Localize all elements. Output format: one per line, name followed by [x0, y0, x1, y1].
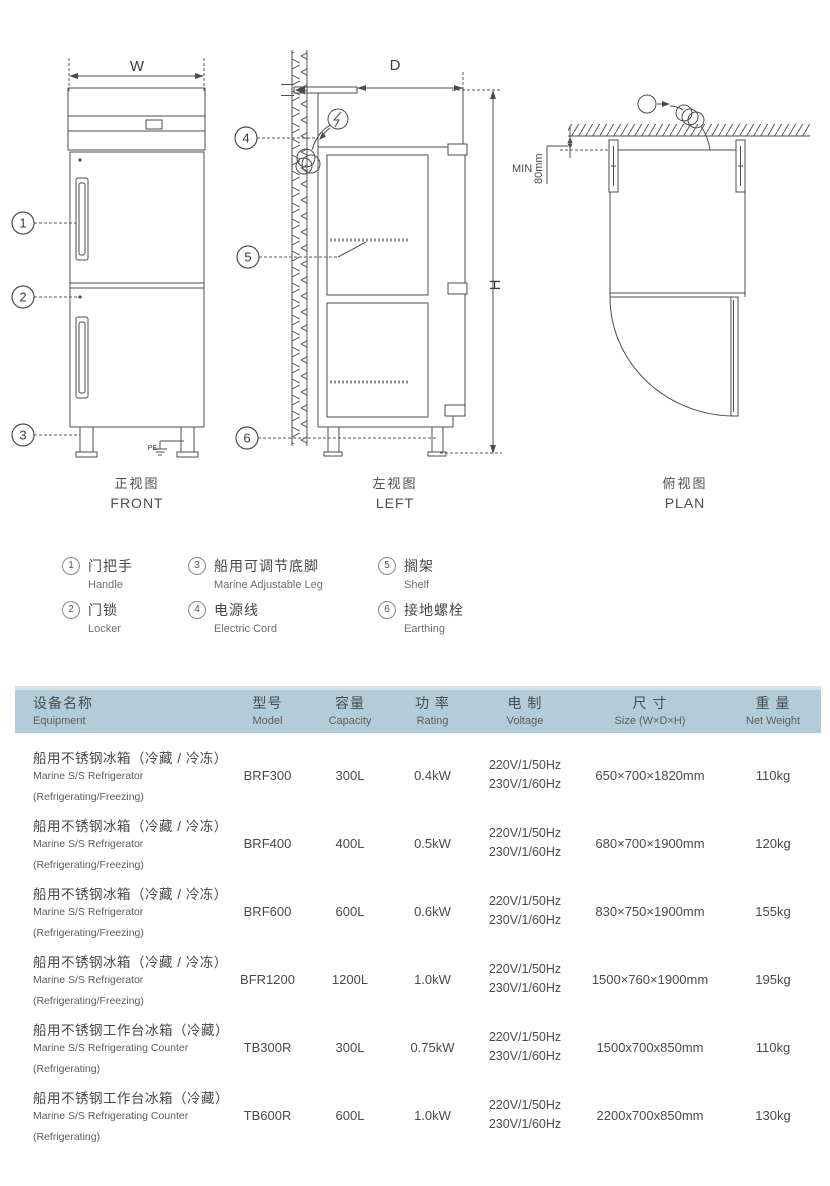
cell-model: BFR1200 [225, 972, 310, 987]
equipment-name-cn: 船用不锈钢冰箱（冷藏 / 冷冻） [33, 883, 225, 903]
legend-item: 4 电源线 Electric Cord [188, 600, 323, 635]
door-handle-lower [76, 317, 88, 398]
cell-rating: 0.5kW [390, 836, 475, 851]
compartment-lower [327, 303, 428, 417]
adjustable-leg-left [80, 427, 93, 452]
callout-6-earthing: 6 [236, 427, 436, 449]
equipment-name-cn: 船用不锈钢工作台冰箱（冷藏） [33, 1019, 225, 1039]
table-row: 船用不锈钢冰箱（冷藏 / 冷冻） Marine S/S Refrigerator… [15, 809, 821, 877]
legend-label-cn: 搁架 [404, 556, 434, 576]
cell-rating: 0.6kW [390, 904, 475, 919]
equipment-name-en: Marine S/S Refrigerator [33, 770, 143, 782]
adjustable-leg-right [181, 427, 194, 452]
svg-text:1: 1 [19, 216, 26, 231]
open-door [731, 297, 738, 416]
cell-model: TB300R [225, 1040, 310, 1055]
voltage-line-2: 230V/1/60Hz [489, 1115, 561, 1134]
legend-item: 3 船用可调节底脚 Marine Adjustable Leg [188, 556, 323, 591]
header-equipment: 设备名称 Equipment [15, 686, 225, 733]
table-row: 船用不锈钢工作台冰箱（冷藏） Marine S/S Refrigerating … [15, 1081, 821, 1149]
spec-table: 设备名称 Equipment 型号 Model 容量 Capacity 功 率 … [15, 686, 821, 1149]
cell-size: 830×750×1900mm [575, 904, 725, 919]
callout-2-locker: 2 [12, 286, 77, 308]
voltage-line-1: 220V/1/50Hz [489, 1096, 561, 1115]
voltage-line-2: 230V/1/60Hz [489, 911, 561, 930]
legend-item: 5 搁架 Shelf [378, 556, 464, 591]
cell-rating: 0.4kW [390, 768, 475, 783]
legend-item: 1 门把手 Handle [62, 556, 133, 591]
spec-table-body: 船用不锈钢冰箱（冷藏 / 冷冻） Marine S/S Refrigerator… [15, 733, 821, 1149]
plan-view-title-cn: 俯视图 [662, 476, 707, 491]
door-handle-upper [76, 178, 88, 260]
cell-capacity: 300L [310, 1040, 390, 1055]
cell-rating: 1.0kW [390, 972, 475, 987]
svg-text:2: 2 [19, 290, 26, 305]
cell-size: 650×700×1820mm [575, 768, 725, 783]
door-swing-arc [610, 297, 731, 416]
power-plug-symbol [319, 109, 348, 140]
top-compressor-panel [68, 88, 205, 150]
front-view-title-en: FRONT [110, 495, 163, 511]
legend-column: 3 船用可调节底脚 Marine Adjustable Leg 4 电源线 El… [188, 556, 323, 644]
cell-size: 1500x700x850mm [575, 1040, 725, 1055]
legend-label-cn: 电源线 [214, 600, 277, 620]
legend-item: 2 门锁 Locker [62, 600, 133, 635]
legend-number-badge: 3 [188, 557, 206, 575]
header-equipment-cn: 设备名称 [33, 693, 93, 713]
cell-voltage: 220V/1/50Hz 230V/1/60Hz [475, 1096, 575, 1134]
legend-label-en: Handle [88, 579, 133, 591]
cell-model: TB600R [225, 1108, 310, 1123]
legend-number-badge: 5 [378, 557, 396, 575]
equipment-note: (Refrigerating/Freezing) [33, 927, 144, 939]
cell-model: BRF600 [225, 904, 310, 919]
header-size: 尺 寸 Size (W×D×H) [575, 686, 725, 733]
callout-1-handle: 1 [12, 212, 76, 234]
legend-number-badge: 2 [62, 601, 80, 619]
clearance-label: 80mm [533, 153, 545, 184]
legend-label-en: Locker [88, 623, 121, 635]
depth-dimension-label: D [390, 57, 401, 74]
voltage-line-1: 220V/1/50Hz [489, 960, 561, 979]
cell-weight: 110kg [725, 1040, 821, 1055]
voltage-line-2: 230V/1/60Hz [489, 843, 561, 862]
equipment-note: (Refrigerating) [33, 1131, 100, 1143]
cell-weight: 155kg [725, 904, 821, 919]
voltage-line-1: 220V/1/50Hz [489, 824, 561, 843]
front-view-drawing: W PE [12, 58, 205, 457]
equipment-note: (Refrigerating/Freezing) [33, 859, 144, 871]
plan-view-title-en: PLAN [665, 495, 706, 511]
equipment-name-en: Marine S/S Refrigerator [33, 974, 143, 986]
cell-model: BRF400 [225, 836, 310, 851]
legend-label-en: Earthing [404, 623, 464, 635]
voltage-line-1: 220V/1/50Hz [489, 1028, 561, 1047]
cell-voltage: 220V/1/50Hz 230V/1/60Hz [475, 756, 575, 794]
front-view-title-cn: 正视图 [114, 476, 159, 491]
door-hinge-top [448, 144, 467, 155]
spec-sheet-page: W PE [0, 0, 830, 1186]
cell-equipment: 船用不锈钢工作台冰箱（冷藏） Marine S/S Refrigerating … [15, 1087, 225, 1143]
view-titles: 正视图 FRONT 左视图 LEFT 俯视图 PLAN [110, 476, 707, 511]
cell-voltage: 220V/1/50Hz 230V/1/60Hz [475, 892, 575, 930]
door-hinge-middle [448, 283, 467, 294]
legend-item: 6 接地螺栓 Earthing [378, 600, 464, 635]
parts-legend: 1 门把手 Handle 2 门锁 Locker 3 船用可调节底脚 Marin… [0, 556, 830, 666]
legend-label-en: Electric Cord [214, 623, 277, 635]
plug-and-cord [638, 95, 710, 150]
legend-number-badge: 6 [378, 601, 396, 619]
cell-capacity: 300L [310, 768, 390, 783]
table-row: 船用不锈钢冰箱（冷藏 / 冷冻） Marine S/S Refrigerator… [15, 945, 821, 1013]
cell-voltage: 220V/1/50Hz 230V/1/60Hz [475, 824, 575, 862]
cabinet-body [70, 152, 204, 427]
left-view-title-en: LEFT [376, 495, 414, 511]
door-lock-upper [78, 158, 81, 161]
equipment-note: (Refrigerating/Freezing) [33, 995, 144, 1007]
svg-text:3: 3 [19, 428, 26, 443]
cell-equipment: 船用不锈钢工作台冰箱（冷藏） Marine S/S Refrigerating … [15, 1019, 225, 1075]
equipment-note: (Refrigerating/Freezing) [33, 791, 144, 803]
cell-weight: 130kg [725, 1108, 821, 1123]
cell-voltage: 220V/1/50Hz 230V/1/60Hz [475, 960, 575, 998]
svg-text:6: 6 [243, 431, 250, 446]
cell-equipment: 船用不锈钢冰箱（冷藏 / 冷冻） Marine S/S Refrigerator… [15, 815, 225, 871]
legend-number-badge: 4 [188, 601, 206, 619]
cell-size: 1500×760×1900mm [575, 972, 725, 987]
legend-label-cn: 门锁 [88, 600, 121, 620]
cell-capacity: 600L [310, 904, 390, 919]
door-lock-lower [78, 295, 81, 298]
cell-weight: 195kg [725, 972, 821, 987]
cell-equipment: 船用不锈钢冰箱（冷藏 / 冷冻） Marine S/S Refrigerator… [15, 951, 225, 1007]
spec-table-header: 设备名称 Equipment 型号 Model 容量 Capacity 功 率 … [15, 686, 821, 733]
header-weight: 重 量 Net Weight [725, 686, 821, 733]
voltage-line-2: 230V/1/60Hz [489, 979, 561, 998]
width-dimension-label: W [130, 58, 145, 75]
table-row: 船用不锈钢冰箱（冷藏 / 冷冻） Marine S/S Refrigerator… [15, 741, 821, 809]
leg-front [328, 427, 339, 452]
cell-capacity: 400L [310, 836, 390, 851]
left-view-drawing: D [235, 50, 504, 456]
cell-rating: 0.75kW [390, 1040, 475, 1055]
legend-label-en: Shelf [404, 579, 434, 591]
cell-voltage: 220V/1/50Hz 230V/1/60Hz [475, 1028, 575, 1066]
equipment-name-en: Marine S/S Refrigerating Counter [33, 1110, 188, 1122]
cell-capacity: 1200L [310, 972, 390, 987]
voltage-line-2: 230V/1/60Hz [489, 1047, 561, 1066]
technical-drawings: W PE [0, 0, 830, 530]
header-voltage: 电 制 Voltage [475, 686, 575, 733]
control-display [146, 120, 162, 129]
equipment-name-cn: 船用不锈钢冰箱（冷藏 / 冷冻） [33, 747, 225, 767]
voltage-line-1: 220V/1/50Hz [489, 756, 561, 775]
equipment-name-cn: 船用不锈钢冰箱（冷藏 / 冷冻） [33, 951, 225, 971]
door-hinge-bottom [445, 405, 465, 416]
wall-hatch [568, 124, 810, 136]
voltage-line-2: 230V/1/60Hz [489, 775, 561, 794]
pe-ground-symbol: PE [148, 441, 184, 455]
cell-weight: 110kg [725, 768, 821, 783]
legend-label-en: Marine Adjustable Leg [214, 579, 323, 591]
header-equipment-en: Equipment [33, 715, 86, 727]
header-capacity: 容量 Capacity [310, 686, 390, 733]
header-model: 型号 Model [225, 686, 310, 733]
svg-text:5: 5 [244, 250, 251, 265]
leg-rear [432, 427, 443, 452]
equipment-name-cn: 船用不锈钢冰箱（冷藏 / 冷冻） [33, 815, 225, 835]
left-view-title-cn: 左视图 [372, 476, 417, 491]
cell-model: BRF300 [225, 768, 310, 783]
cell-equipment: 船用不锈钢冰箱（冷藏 / 冷冻） Marine S/S Refrigerator… [15, 747, 225, 803]
legend-number-badge: 1 [62, 557, 80, 575]
table-row: 船用不锈钢工作台冰箱（冷藏） Marine S/S Refrigerating … [15, 1013, 821, 1081]
bulkhead-wall-hatch [292, 52, 307, 444]
cell-capacity: 600L [310, 1108, 390, 1123]
min-clearance-dimension: MIN 80mm [512, 126, 573, 184]
cell-weight: 120kg [725, 836, 821, 851]
equipment-name-en: Marine S/S Refrigerating Counter [33, 1042, 188, 1054]
height-dimension-label: H [487, 280, 504, 291]
equipment-name-cn: 船用不锈钢工作台冰箱（冷藏） [33, 1087, 225, 1107]
equipment-name-en: Marine S/S Refrigerator [33, 838, 143, 850]
legend-label-cn: 接地螺栓 [404, 600, 464, 620]
compartment-upper [327, 155, 428, 295]
min-label: MIN [512, 163, 532, 175]
cell-size: 680×700×1900mm [575, 836, 725, 851]
header-rating: 功 率 Rating [390, 686, 475, 733]
cell-size: 2200x700x850mm [575, 1108, 725, 1123]
equipment-note: (Refrigerating) [33, 1063, 100, 1075]
table-row: 船用不锈钢冰箱（冷藏 / 冷冻） Marine S/S Refrigerator… [15, 877, 821, 945]
svg-text:4: 4 [242, 131, 249, 146]
legend-column: 5 搁架 Shelf 6 接地螺栓 Earthing [378, 556, 464, 644]
voltage-line-1: 220V/1/50Hz [489, 892, 561, 911]
callout-5-shelf: 5 [237, 246, 338, 268]
equipment-name-en: Marine S/S Refrigerator [33, 906, 143, 918]
legend-label-cn: 门把手 [88, 556, 133, 576]
cell-equipment: 船用不锈钢冰箱（冷藏 / 冷冻） Marine S/S Refrigerator… [15, 883, 225, 939]
legend-label-cn: 船用可调节底脚 [214, 556, 323, 576]
plan-view-drawing: MIN 80mm [512, 95, 810, 416]
cell-rating: 1.0kW [390, 1108, 475, 1123]
legend-column: 1 门把手 Handle 2 门锁 Locker [62, 556, 133, 644]
